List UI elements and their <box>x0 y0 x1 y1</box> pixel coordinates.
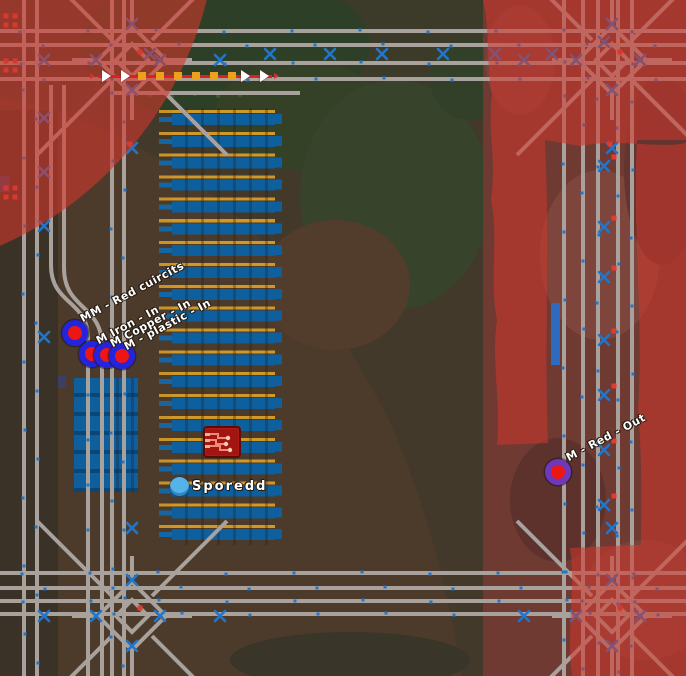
cargo-wagon-icon <box>210 72 218 80</box>
cargo-wagon-icon <box>192 72 200 80</box>
locomotive-icon <box>260 70 269 82</box>
cargo-wagon-icon <box>174 72 182 80</box>
player-marker <box>170 477 189 496</box>
train-arrow-icon <box>274 73 279 79</box>
map-view: MM - Red cuircits M Iron - In M Copper -… <box>0 0 686 676</box>
cargo-wagon-icon <box>156 72 164 80</box>
cargo-wagon-icon <box>138 72 146 80</box>
locomotive-icon <box>241 70 250 82</box>
red-circuit-icon[interactable] <box>203 426 241 458</box>
map-tag-red-out[interactable] <box>545 459 571 485</box>
locomotive-icon <box>102 70 111 82</box>
locomotive-icon <box>121 70 130 82</box>
train-arrow-icon <box>90 73 95 79</box>
player-name: Sporedd <box>192 479 267 494</box>
cargo-wagon-icon <box>228 72 236 80</box>
